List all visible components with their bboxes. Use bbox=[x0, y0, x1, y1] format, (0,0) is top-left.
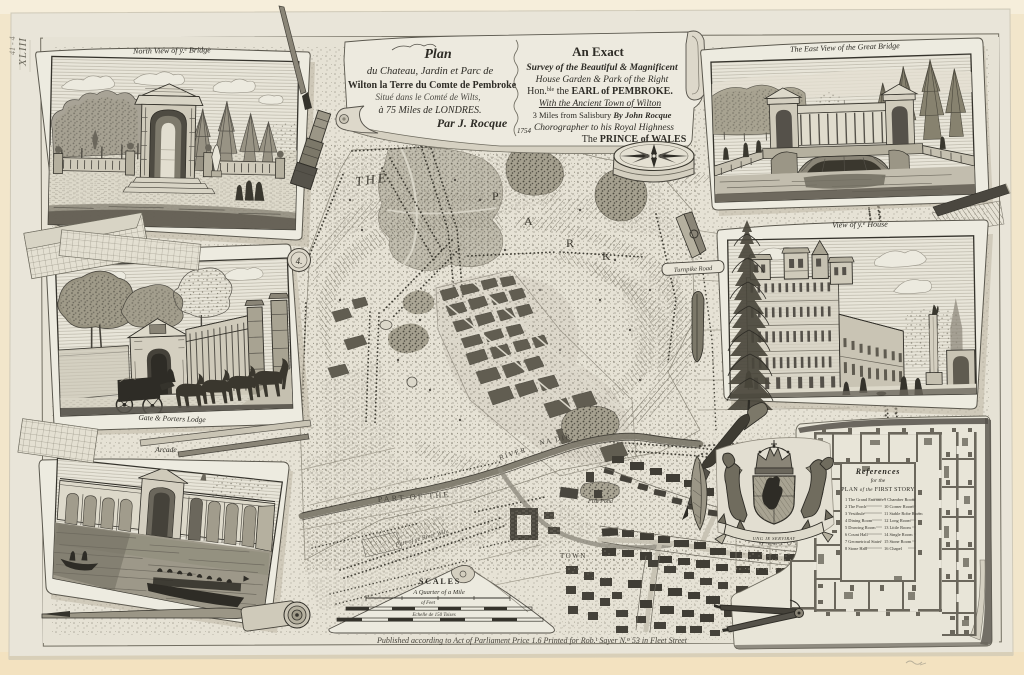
svg-text:House Garden & Park of the Rig: House Garden & Park of the Right bbox=[535, 74, 669, 85]
svg-text:10 Corner Room: 10 Corner Room bbox=[884, 504, 914, 509]
svg-text:8 Stone Hall: 8 Stone Hall bbox=[845, 546, 868, 551]
svg-text:Echelle de 150 Toises: Echelle de 150 Toises bbox=[411, 613, 455, 618]
svg-text:15 Stone Room: 15 Stone Room bbox=[884, 539, 912, 544]
svg-text:6 Count Hall: 6 Count Hall bbox=[845, 532, 868, 537]
svg-text:Fish Pond: Fish Pond bbox=[587, 499, 614, 505]
svg-text:View of y.e House: View of y.e House bbox=[832, 220, 888, 230]
svg-text:R: R bbox=[566, 236, 574, 250]
svg-text:P: P bbox=[492, 189, 499, 203]
svg-text:SCALES: SCALES bbox=[419, 577, 461, 586]
svg-text:PLAN of the FIRST STORY: PLAN of the FIRST STORY bbox=[841, 487, 915, 493]
svg-text:Arcade: Arcade bbox=[154, 445, 177, 454]
svg-text:3 Vestibule: 3 Vestibule bbox=[845, 511, 865, 516]
svg-text:2 The Porch: 2 The Porch bbox=[845, 504, 867, 509]
svg-text:An Exact: An Exact bbox=[572, 44, 624, 59]
svg-text:Chorographer to his Royal High: Chorographer to his Royal Highness bbox=[534, 123, 674, 133]
svg-text:of Feet: of Feet bbox=[421, 601, 436, 606]
svg-text:A Quarter of a Mile: A Quarter of a Mile bbox=[412, 589, 465, 596]
svg-text:4 Dining Room: 4 Dining Room bbox=[845, 518, 873, 523]
svg-text:UNG JE SERVIRAY: UNG JE SERVIRAY bbox=[753, 536, 796, 541]
svg-text:for the: for the bbox=[871, 477, 886, 484]
svg-text:Survey of the Beautiful & Magn: Survey of the Beautiful & Magnificent bbox=[526, 63, 678, 73]
svg-text:11 Stable Robe Room: 11 Stable Robe Room bbox=[884, 511, 923, 516]
svg-text:4.: 4. bbox=[296, 256, 303, 266]
svg-text:K: K bbox=[602, 249, 611, 263]
svg-text:With the Ancient Town of Wilto: With the Ancient Town of Wilton bbox=[539, 98, 661, 109]
svg-text:Par J. Rocque: Par J. Rocque bbox=[437, 116, 508, 130]
svg-text:à 75 Miles de LONDRES.: à 75 Miles de LONDRES. bbox=[378, 105, 481, 116]
svg-text:5 Drawing Room: 5 Drawing Room bbox=[845, 525, 876, 530]
svg-text:1754: 1754 bbox=[517, 127, 532, 135]
svg-text:Published according to Act of: Published according to Act of Parliament… bbox=[376, 636, 688, 645]
svg-text:12 Long Room: 12 Long Room bbox=[884, 518, 911, 523]
svg-text:1 The Grand Entrance: 1 The Grand Entrance bbox=[845, 497, 884, 502]
svg-text:Situé dans le Comté de Wilts,: Situé dans le Comté de Wilts, bbox=[376, 92, 481, 102]
svg-text:14 Single Room: 14 Single Room bbox=[884, 532, 913, 537]
svg-text:16 Chapel: 16 Chapel bbox=[884, 546, 903, 551]
svg-text:13 Little Room: 13 Little Room bbox=[884, 525, 911, 530]
svg-text:North View of y.e Bridge: North View of y.e Bridge bbox=[132, 45, 211, 55]
svg-text:du Chateau, Jardin et Parc de: du Chateau, Jardin et Parc de bbox=[367, 66, 494, 77]
svg-text:3 Miles from Salisbury By John: 3 Miles from Salisbury By John Rocque bbox=[533, 110, 672, 120]
svg-text:Wilton la Terre du Comte de Pe: Wilton la Terre du Comte de Pembroke bbox=[348, 80, 517, 91]
svg-text:7 Geometrical Stairs: 7 Geometrical Stairs bbox=[845, 539, 881, 544]
svg-text:A: A bbox=[524, 214, 533, 228]
svg-text:9 Chamber Room: 9 Chamber Room bbox=[884, 497, 916, 502]
svg-text:References: References bbox=[855, 467, 900, 476]
svg-text:Plan: Plan bbox=[424, 47, 451, 62]
svg-text:41 - 4: 41 - 4 bbox=[8, 36, 17, 55]
svg-text:XLIII: XLIII bbox=[17, 37, 29, 67]
